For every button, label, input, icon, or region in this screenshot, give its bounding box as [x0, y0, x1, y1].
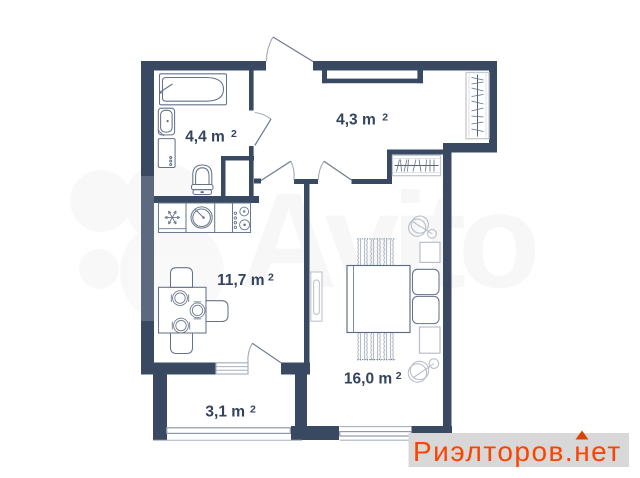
svg-text:2: 2 [268, 272, 274, 284]
svg-text:4,3 m: 4,3 m [336, 112, 376, 129]
svg-text:Риэлторов.нет: Риэлторов.нет [413, 436, 622, 467]
svg-text:2: 2 [382, 111, 388, 123]
svg-text:4,4 m: 4,4 m [185, 128, 225, 145]
svg-text:2: 2 [250, 403, 256, 415]
svg-text:2: 2 [396, 370, 402, 382]
svg-text:2: 2 [231, 128, 237, 140]
svg-text:3,1 m: 3,1 m [205, 404, 245, 421]
svg-text:11,7 m: 11,7 m [217, 272, 264, 289]
svg-text:16,0 m: 16,0 m [344, 370, 392, 387]
